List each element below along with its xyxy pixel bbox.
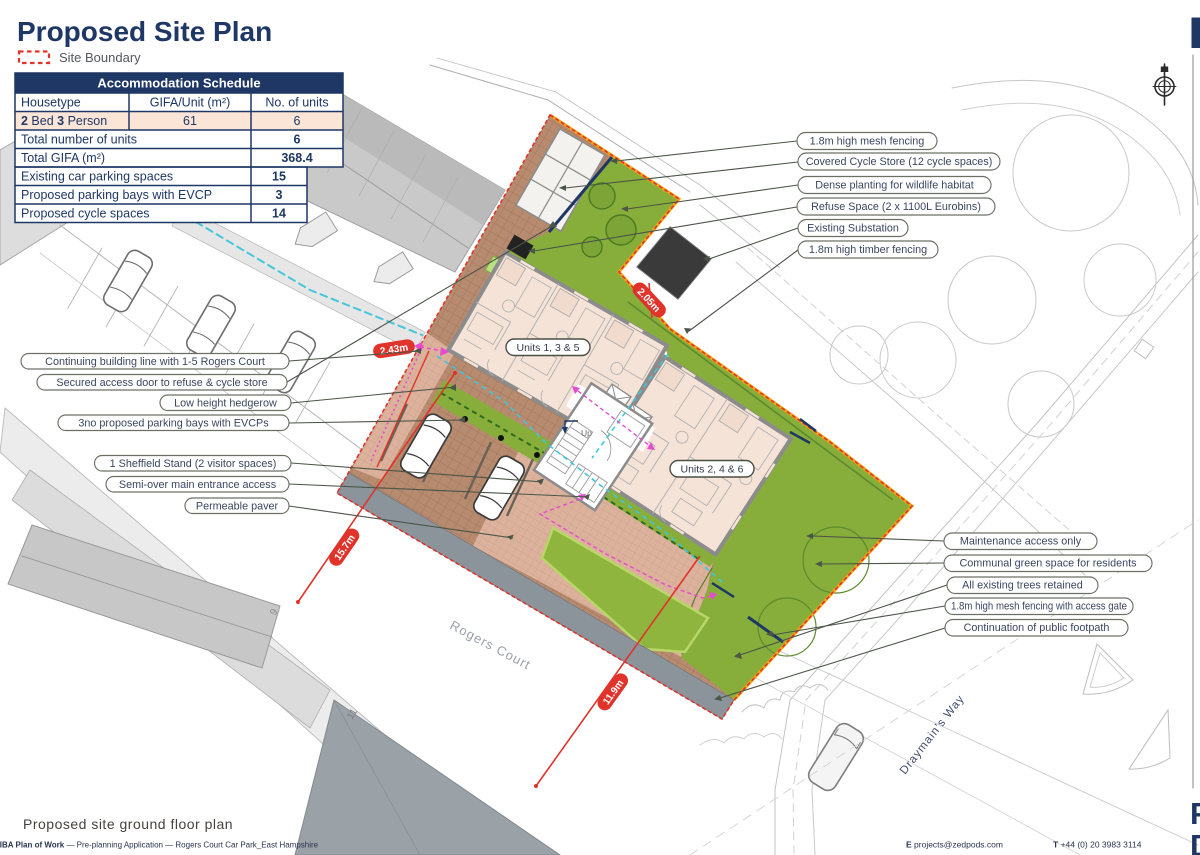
- svg-text:All existing trees retained: All existing trees retained: [962, 580, 1083, 592]
- svg-text:E projects@zedpods.com: E projects@zedpods.com: [906, 840, 1003, 850]
- svg-text:Units 2, 4 & 6: Units 2, 4 & 6: [680, 464, 743, 476]
- svg-text:Total GIFA (m²): Total GIFA (m²): [21, 151, 105, 165]
- svg-text:6: 6: [294, 114, 301, 128]
- svg-text:Housetype: Housetype: [21, 96, 81, 110]
- svg-text:Proposed parking bays with EVC: Proposed parking bays with EVCP: [21, 188, 212, 202]
- svg-text:1.8m high mesh fencing: 1.8m high mesh fencing: [810, 136, 925, 148]
- svg-text:14: 14: [272, 207, 286, 221]
- svg-text:Maintenance access only: Maintenance access only: [960, 536, 1082, 548]
- svg-text:Units 1, 3 & 5: Units 1, 3 & 5: [516, 342, 579, 354]
- svg-text:Existing car parking spaces: Existing car parking spaces: [21, 170, 173, 184]
- svg-text:15: 15: [272, 170, 286, 184]
- svg-text:Total number of units: Total number of units: [21, 133, 137, 147]
- svg-text:Covered Cycle Store (12 cycle: Covered Cycle Store (12 cycle spaces): [806, 156, 993, 168]
- svg-text:Permeable paver: Permeable paver: [196, 501, 279, 513]
- svg-text:D: D: [1190, 828, 1200, 855]
- svg-text:3no proposed parking bays with: 3no proposed parking bays with EVCPs: [78, 418, 269, 430]
- svg-text:P: P: [1190, 796, 1200, 831]
- svg-text:3: 3: [276, 188, 283, 202]
- svg-text:Proposed Site Plan: Proposed Site Plan: [17, 16, 272, 47]
- svg-text:Up: Up: [581, 428, 592, 438]
- svg-text:1.8m high mesh fencing with ac: 1.8m high mesh fencing with access gate: [951, 601, 1127, 613]
- svg-text:Proposed cycle spaces: Proposed cycle spaces: [21, 207, 150, 221]
- svg-text:2 Bed 3 Person: 2 Bed 3 Person: [21, 114, 107, 128]
- svg-text:Communal green space for resid: Communal green space for residents: [959, 558, 1137, 570]
- svg-text:Semi-over main entrance access: Semi-over main entrance access: [119, 479, 277, 491]
- svg-text:Existing Substation: Existing Substation: [807, 223, 899, 235]
- svg-text:Site Boundary: Site Boundary: [59, 50, 141, 65]
- svg-text:Low height hedgerow: Low height hedgerow: [174, 398, 277, 410]
- svg-text:Accommodation Schedule: Accommodation Schedule: [97, 76, 260, 91]
- svg-text:Continuation of public footpat: Continuation of public footpath: [964, 622, 1110, 634]
- svg-text:GIFA/Unit (m²): GIFA/Unit (m²): [150, 96, 231, 110]
- svg-text:RIBA Plan of Work — Pre-planni: RIBA Plan of Work — Pre-planning Applica…: [0, 841, 319, 850]
- svg-text:Secured access door to refuse: Secured access door to refuse & cycle st…: [56, 377, 267, 389]
- svg-text:61: 61: [183, 114, 197, 128]
- svg-text:Proposed site ground floor pla: Proposed site ground floor plan: [23, 816, 233, 832]
- svg-text:1 Sheffield Stand (2 visitor s: 1 Sheffield Stand (2 visitor spaces): [110, 458, 277, 470]
- svg-text:Dense planting for wildlife ha: Dense planting for wildlife habitat: [815, 180, 973, 192]
- svg-text:Refuse Space (2 x 1100L Eurobi: Refuse Space (2 x 1100L Eurobins): [811, 201, 981, 213]
- svg-text:Continuing building line with: Continuing building line with 1-5 Rogers…: [45, 356, 265, 368]
- svg-text:368.4: 368.4: [281, 151, 312, 165]
- svg-text:No. of units: No. of units: [265, 96, 328, 110]
- svg-text:1.8m high timber fencing: 1.8m high timber fencing: [809, 244, 927, 256]
- svg-text:6: 6: [294, 133, 301, 147]
- svg-text:T +44 (0) 20 3983 3114: T +44 (0) 20 3983 3114: [1053, 840, 1142, 850]
